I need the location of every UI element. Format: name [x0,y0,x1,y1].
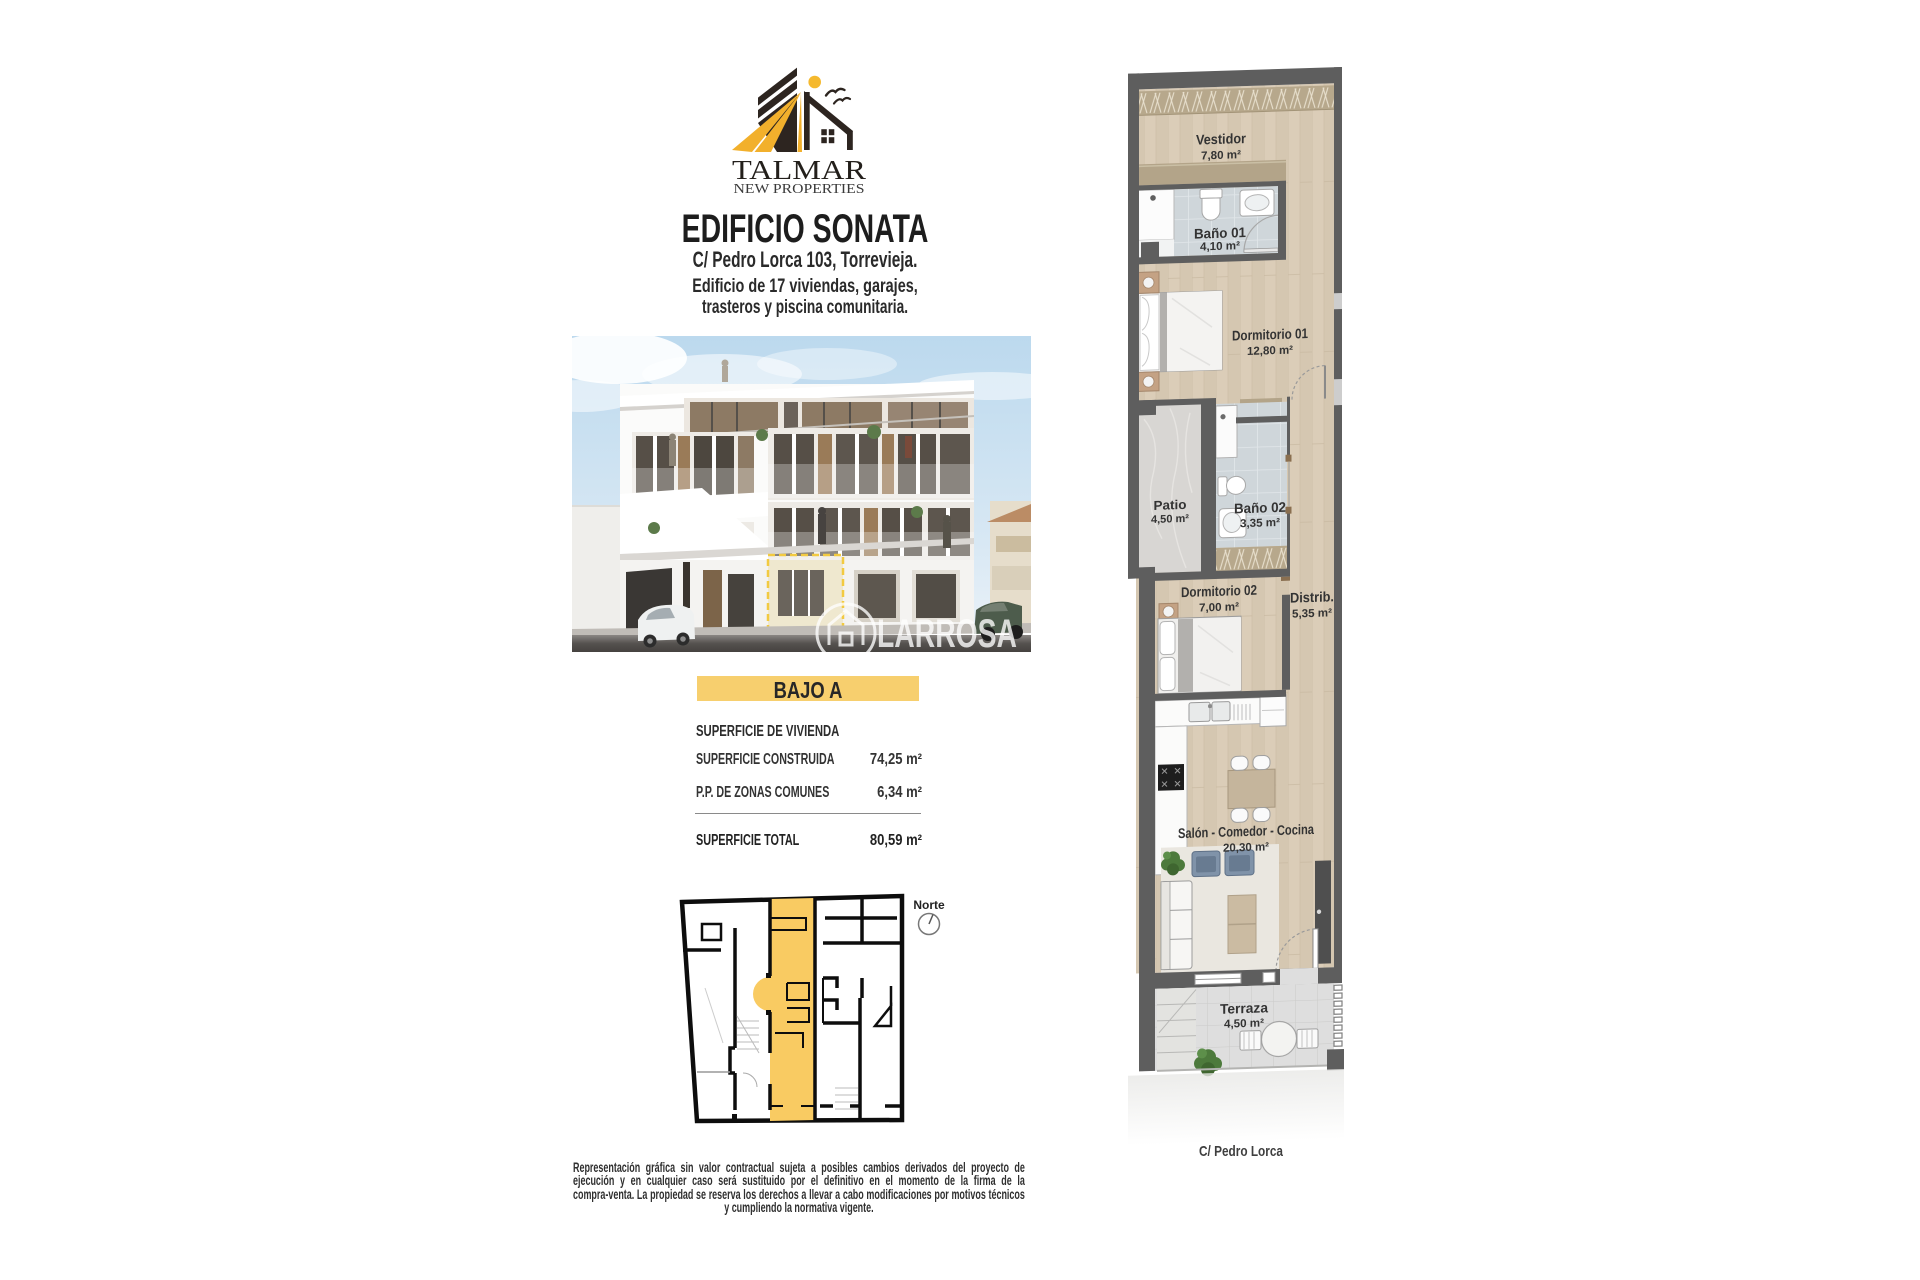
svg-text:7,80 m²: 7,80 m² [1201,149,1241,162]
svg-text:4,50 m²: 4,50 m² [1224,1017,1264,1030]
svg-text:7,00 m²: 7,00 m² [1199,601,1239,614]
svg-text:Baño 02: Baño 02 [1234,499,1286,517]
svg-text:Baño 01: Baño 01 [1194,224,1246,242]
svg-text:Dormitorio 02: Dormitorio 02 [1181,582,1257,600]
svg-text:4,10 m²: 4,10 m² [1200,240,1240,253]
svg-text:Distrib.: Distrib. [1290,588,1334,605]
svg-text:NEW PROPERTIES: NEW PROPERTIES [734,181,865,196]
svg-text:Patio: Patio [1154,497,1187,513]
svg-text:Vestidor: Vestidor [1196,130,1246,148]
svg-text:4,50 m²: 4,50 m² [1151,513,1189,526]
svg-text:PROPERTIES: PROPERTIES [880,650,997,664]
svg-text:20,30 m²: 20,30 m² [1223,841,1269,854]
svg-text:3,35 m²: 3,35 m² [1240,517,1280,530]
svg-text:Terraza: Terraza [1220,999,1268,1017]
svg-text:5,35 m²: 5,35 m² [1292,607,1332,620]
svg-text:Norte: Norte [913,898,945,912]
svg-text:12,80 m²: 12,80 m² [1247,345,1293,358]
svg-text:Dormitorio 01: Dormitorio 01 [1232,325,1308,343]
svg-text:C/ Pedro Lorca: C/ Pedro Lorca [1199,1143,1284,1160]
